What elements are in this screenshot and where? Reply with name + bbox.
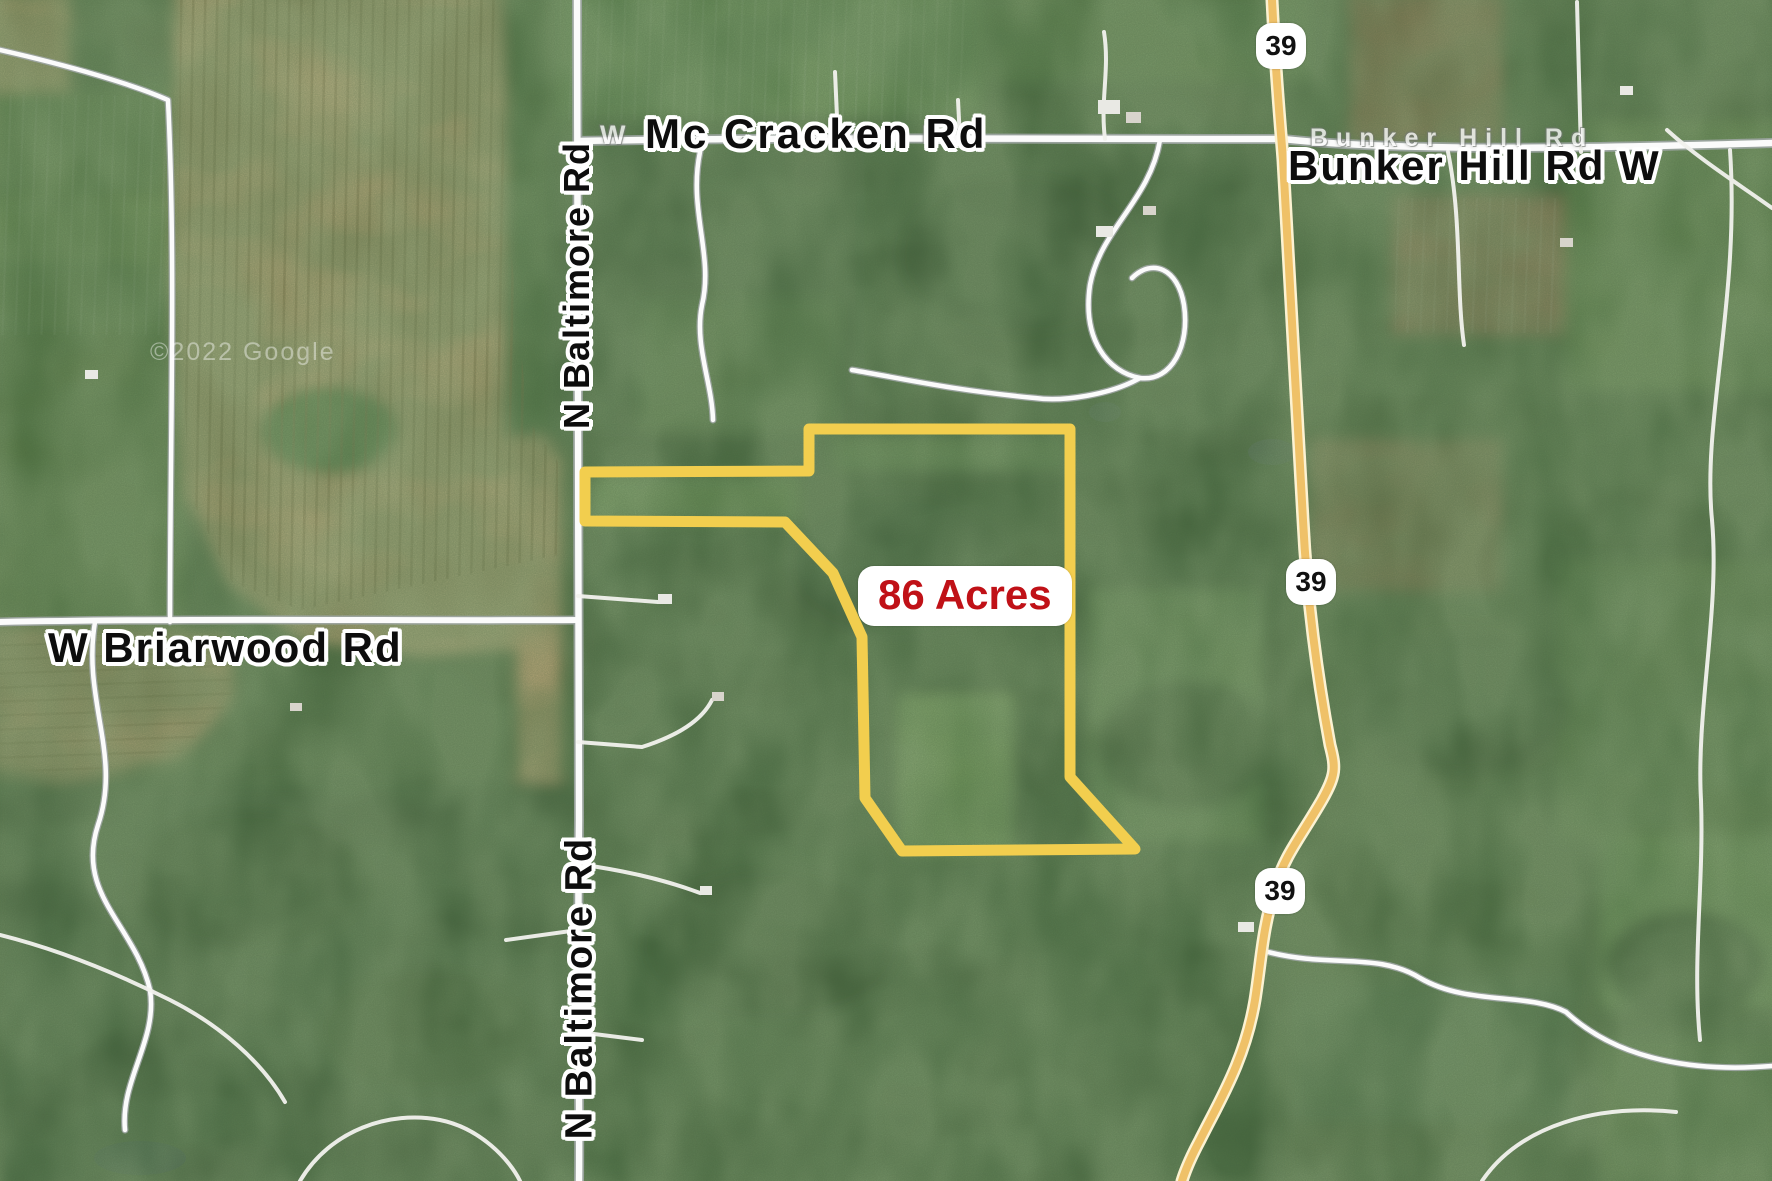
route-39-shield-top: 39: [1256, 23, 1306, 69]
baltimore-road-label-top: N Baltimore Rd: [556, 141, 598, 429]
briarwood-road-label: W Briarwood Rd: [48, 624, 403, 672]
map-attribution: ©2022 Google: [150, 338, 336, 367]
route-39-shield-middle: 39: [1286, 559, 1336, 605]
route-39-shield-bottom: 39: [1255, 868, 1305, 914]
satellite-map[interactable]: ©2022 Google W Mc Cracken Rd Bunker Hill…: [0, 0, 1772, 1181]
bunker-hill-road-label: Bunker Hill Rd W: [1288, 142, 1661, 190]
baltimore-road-label-bottom: N Baltimore Rd: [559, 837, 602, 1139]
mccracken-road-label: Mc Cracken Rd: [645, 110, 987, 158]
acreage-callout: 86 Acres: [858, 566, 1072, 626]
